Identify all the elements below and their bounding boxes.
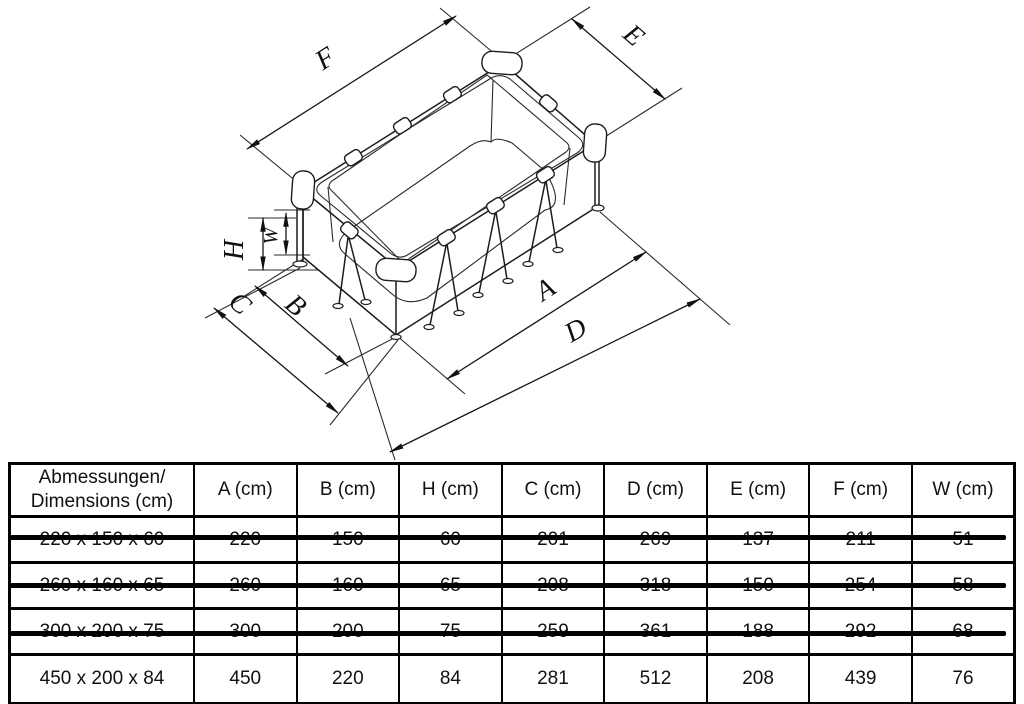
header-W: W (cm) [912,464,1015,517]
cell-B: 220 [297,655,400,704]
cell-D: 269 [604,517,707,563]
dimension-A-label: A [528,272,562,309]
cell-H: 60 [399,517,502,563]
cell-D: 361 [604,609,707,655]
header-dimensions: Abmessungen/ Dimensions (cm) [10,464,195,517]
cell-B: 160 [297,563,400,609]
cell-W: 58 [912,563,1015,609]
dimensions-table: Abmessungen/ Dimensions (cm) A (cm) B (c… [8,462,1016,704]
row-label: 220 x 150 x 60 [10,517,195,563]
cell-C: 201 [502,517,605,563]
cell-C: 281 [502,655,605,704]
cell-B: 150 [297,517,400,563]
cell-E: 150 [707,563,810,609]
dimension-F-label: F [309,41,342,77]
cell-F: 254 [809,563,912,609]
dimension-B-label: B [279,288,312,323]
row-label: 260 x 160 x 65 [10,563,195,609]
dimension-W-label: W [260,225,282,244]
table-row: 300 x 200 x 75 300 200 75 259 361 188 29… [10,609,1015,655]
cell-F: 439 [809,655,912,704]
page: F E A D B C H W Abmessungen/ Dimensions … [0,0,1024,704]
cell-H: 75 [399,609,502,655]
cell-B: 200 [297,609,400,655]
cell-F: 292 [809,609,912,655]
cell-A: 260 [194,563,297,609]
table-row: 220 x 150 x 60 220 150 60 201 269 137 21… [10,517,1015,563]
table-row: 260 x 160 x 65 260 160 65 208 318 150 25… [10,563,1015,609]
row-label: 450 x 200 x 84 [10,655,195,704]
dimension-A-line [447,252,646,379]
header-F: F (cm) [809,464,912,517]
pool-diagram: F E A D B C H W [0,0,1024,462]
dimension-E-line [572,19,665,99]
dimension-D-line [390,299,700,452]
cell-A: 450 [194,655,297,704]
cell-C: 208 [502,563,605,609]
dimension-D-label: D [559,312,593,349]
header-E: E (cm) [707,464,810,517]
cell-C: 259 [502,609,605,655]
dimension-E-label: E [616,18,650,53]
cell-E: 188 [707,609,810,655]
dimension-F-line [247,16,456,149]
header-H: H (cm) [399,464,502,517]
header-B: B (cm) [297,464,400,517]
header-A: A (cm) [194,464,297,517]
cell-W: 68 [912,609,1015,655]
extension-lines [205,7,730,460]
header-dimensions-line2: Dimensions (cm) [31,491,174,512]
cell-E: 208 [707,655,810,704]
header-C: C (cm) [502,464,605,517]
row-label: 300 x 200 x 75 [10,609,195,655]
dimension-H-label: H [219,238,250,261]
cell-F: 211 [809,517,912,563]
pool-body [291,51,608,340]
cell-E: 137 [707,517,810,563]
cell-D: 512 [604,655,707,704]
table-row: 450 x 200 x 84 450 220 84 281 512 208 43… [10,655,1015,704]
cell-W: 76 [912,655,1015,704]
rim-tee-fittings [339,85,559,247]
dimensions-table-wrapper: Abmessungen/ Dimensions (cm) A (cm) B (c… [8,462,1016,704]
header-D: D (cm) [604,464,707,517]
dimension-C-line [214,308,338,413]
header-dimensions-line1: Abmessungen/ [39,467,166,488]
cell-D: 318 [604,563,707,609]
cell-W: 51 [912,517,1015,563]
cell-A: 220 [194,517,297,563]
table-header-row: Abmessungen/ Dimensions (cm) A (cm) B (c… [10,464,1015,517]
cell-A: 300 [194,609,297,655]
cell-H: 65 [399,563,502,609]
cell-H: 84 [399,655,502,704]
